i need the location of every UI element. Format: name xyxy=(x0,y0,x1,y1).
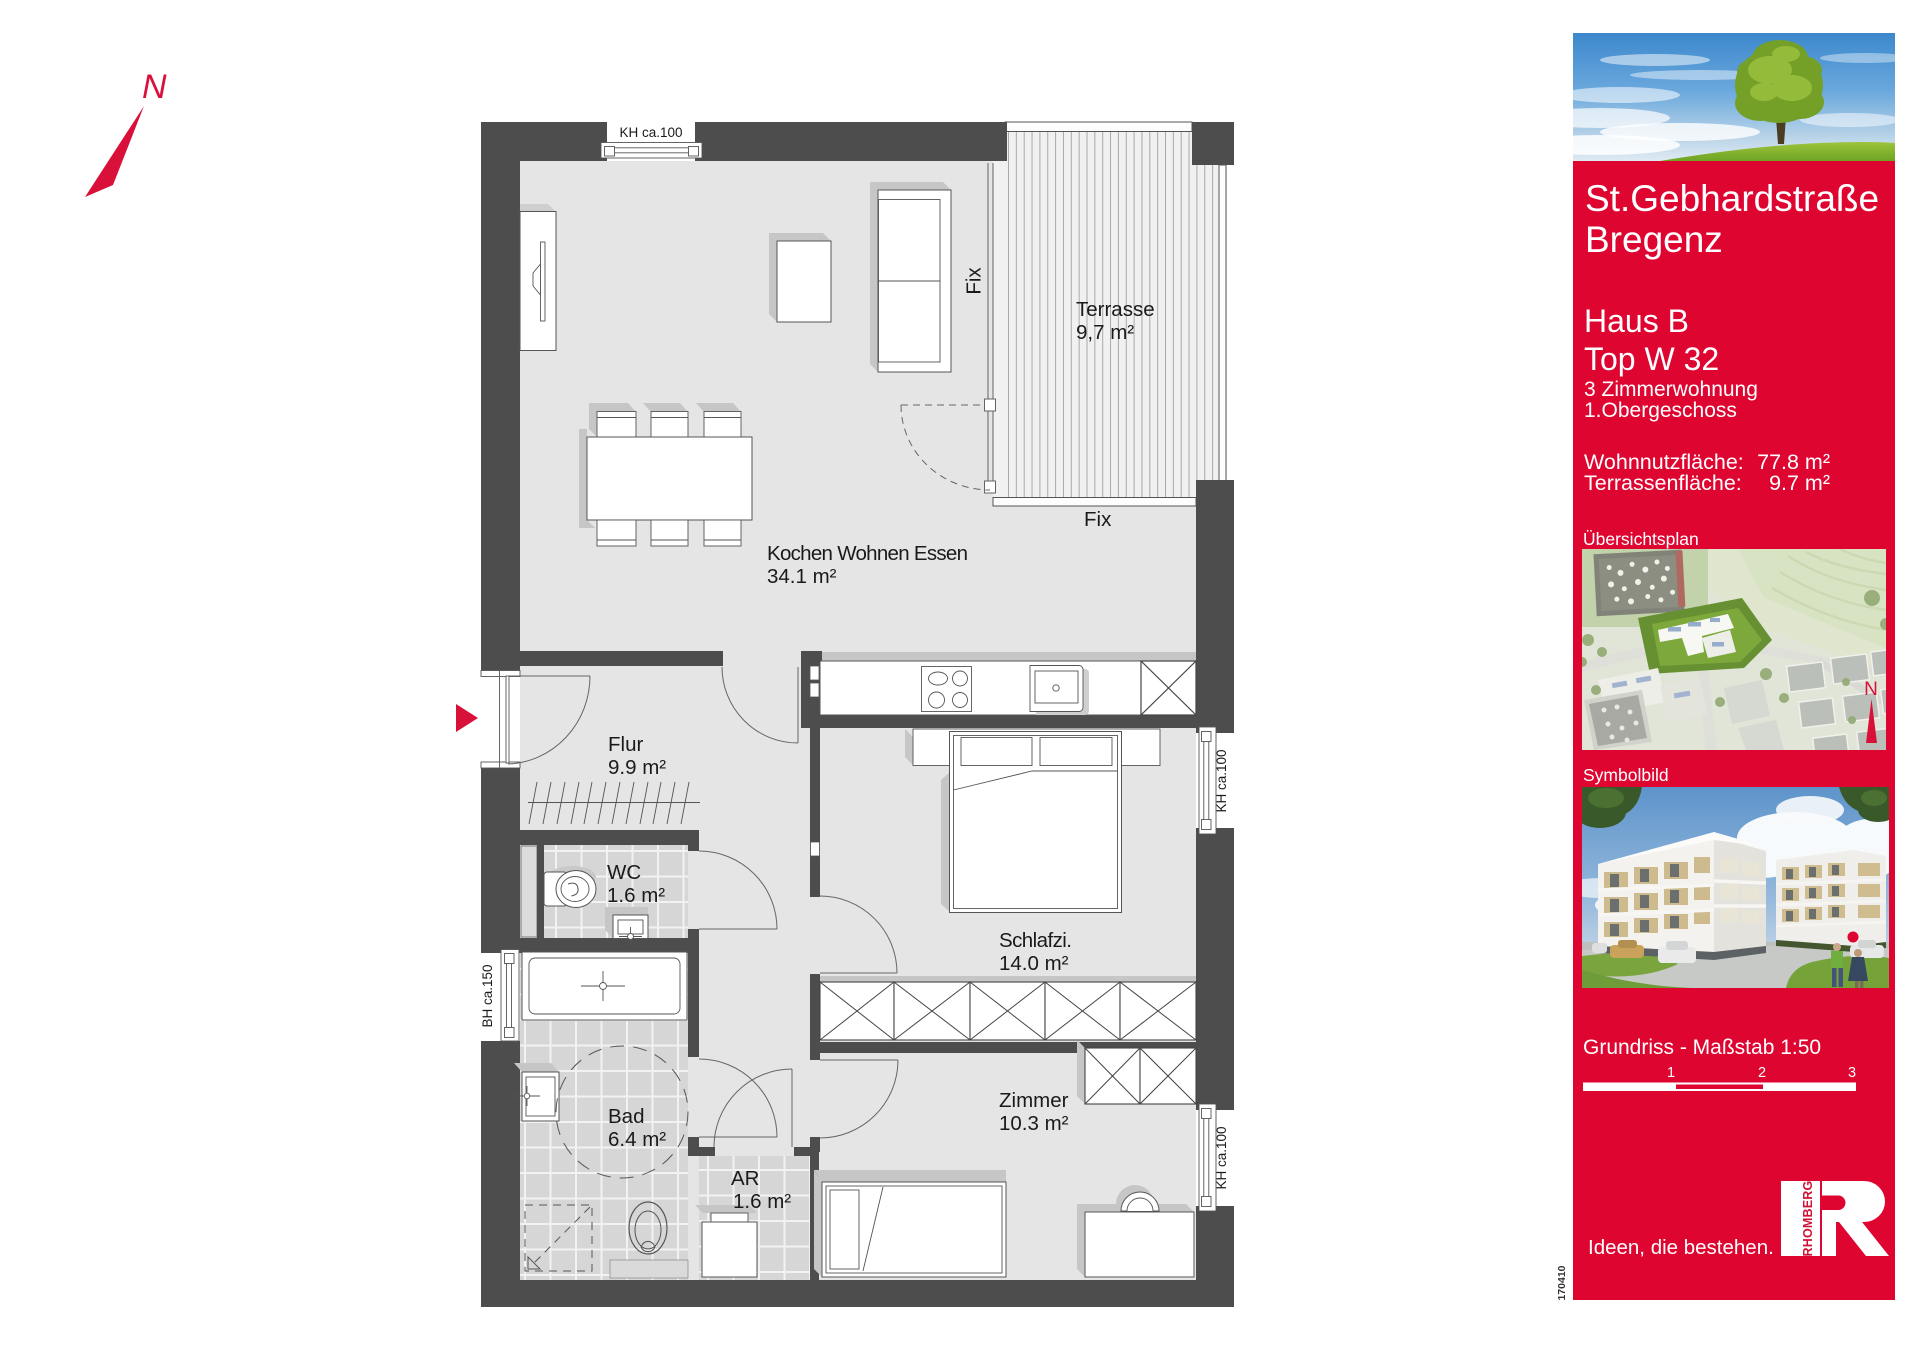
svg-text:3 Zimmerwohnung: 3 Zimmerwohnung xyxy=(1584,378,1758,401)
svg-text:14.0 m²: 14.0 m² xyxy=(999,952,1069,975)
svg-text:Kochen Wohnen Essen: Kochen Wohnen Essen xyxy=(767,542,968,565)
svg-text:3: 3 xyxy=(1848,1065,1856,1081)
svg-text:10.3 m²: 10.3 m² xyxy=(999,1112,1069,1135)
svg-text:WC: WC xyxy=(607,861,641,884)
svg-text:BH ca.150: BH ca.150 xyxy=(480,964,495,1027)
svg-text:Bad: Bad xyxy=(608,1105,644,1128)
svg-text:St.Gebhardstraße: St.Gebhardstraße xyxy=(1585,178,1879,219)
svg-text:2: 2 xyxy=(1758,1065,1766,1081)
svg-text:1.Obergeschoss: 1.Obergeschoss xyxy=(1584,399,1737,422)
svg-text:Grundriss - Maßstab 1:50: Grundriss - Maßstab 1:50 xyxy=(1583,1036,1821,1059)
svg-text:34.1 m²: 34.1 m² xyxy=(767,565,837,588)
svg-text:AR: AR xyxy=(731,1167,759,1190)
svg-text:N: N xyxy=(142,68,167,106)
svg-text:9.9 m²: 9.9 m² xyxy=(608,756,666,779)
svg-text:9.7 m²: 9.7 m² xyxy=(1769,471,1830,495)
svg-text:Flur: Flur xyxy=(608,733,643,756)
svg-text:Fix: Fix xyxy=(1084,508,1112,531)
svg-text:KH ca.100: KH ca.100 xyxy=(1214,1126,1229,1189)
svg-text:Schlafzi.: Schlafzi. xyxy=(999,929,1072,952)
svg-text:KH ca.100: KH ca.100 xyxy=(1214,749,1229,812)
svg-text:170410: 170410 xyxy=(1556,1265,1568,1300)
svg-text:1: 1 xyxy=(1667,1065,1675,1081)
svg-text:Haus B: Haus B xyxy=(1584,303,1689,339)
svg-text:Übersichtsplan: Übersichtsplan xyxy=(1583,529,1699,549)
svg-text:Zimmer: Zimmer xyxy=(999,1089,1069,1112)
svg-text:Terrassenfläche:: Terrassenfläche: xyxy=(1584,471,1742,495)
svg-text:1.6 m²: 1.6 m² xyxy=(607,884,665,907)
svg-text:KH ca.100: KH ca.100 xyxy=(619,125,682,140)
svg-text:Bregenz: Bregenz xyxy=(1585,219,1723,260)
svg-text:Fix: Fix xyxy=(962,267,985,295)
svg-text:Top W 32: Top W 32 xyxy=(1584,341,1719,377)
svg-text:Symbolbild: Symbolbild xyxy=(1583,765,1669,785)
svg-text:Terrasse: Terrasse xyxy=(1076,298,1155,321)
svg-text:9,7 m²: 9,7 m² xyxy=(1076,321,1134,344)
svg-text:1.6 m²: 1.6 m² xyxy=(733,1190,791,1213)
svg-text:Ideen, die bestehen.: Ideen, die bestehen. xyxy=(1588,1236,1774,1259)
svg-text:N: N xyxy=(1864,679,1878,700)
svg-text:RHOMBERG: RHOMBERG xyxy=(1801,1181,1815,1257)
svg-text:6.4 m²: 6.4 m² xyxy=(608,1128,666,1151)
